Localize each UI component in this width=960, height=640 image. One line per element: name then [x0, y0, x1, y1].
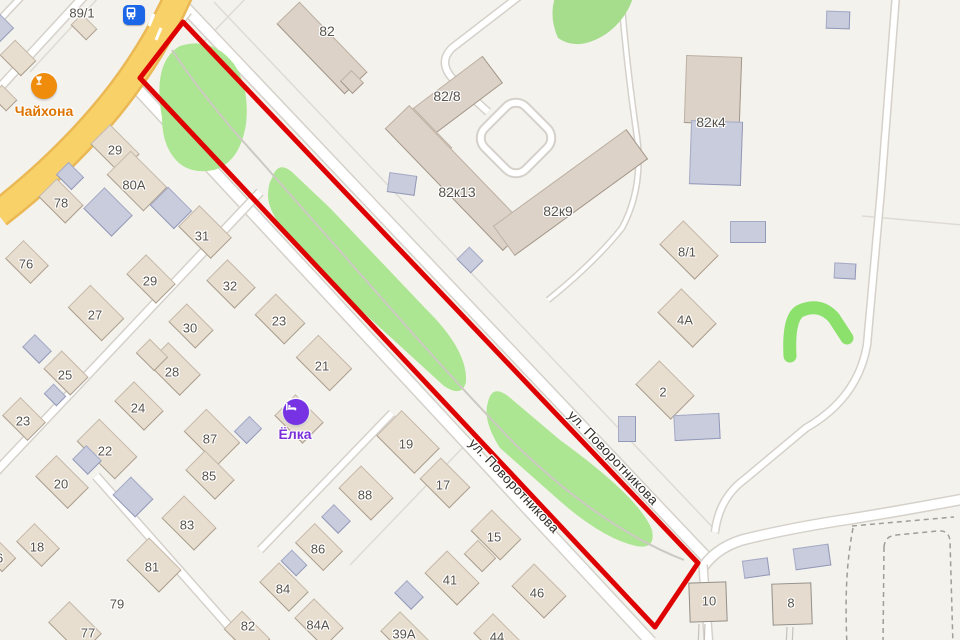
building-outbuilding	[387, 172, 418, 196]
house-number-label: 23	[16, 415, 30, 428]
poi-chaihona[interactable]	[31, 73, 57, 99]
house-number-label: 32	[223, 280, 237, 293]
hookah-glass-icon	[31, 73, 47, 89]
house-number-label: 21	[315, 360, 329, 373]
house-number-label: 87	[203, 433, 217, 446]
house-number-label: 23	[272, 315, 286, 328]
house-number-label: 88	[358, 489, 372, 502]
building-outbuilding	[826, 11, 851, 30]
house-number-label: 82к13	[438, 185, 475, 199]
house-number-label: 46	[530, 587, 544, 600]
house-number-label: 16	[0, 552, 3, 565]
house-number-label: 81	[145, 561, 159, 574]
house-number-label: 78	[54, 197, 68, 210]
bus-stop-icon[interactable]	[123, 5, 145, 25]
house-number-label: 44	[490, 631, 504, 640]
house-number-label: 82к9	[543, 204, 572, 218]
house-number-label: 83	[180, 519, 194, 532]
house-number-label: 8/1	[678, 246, 696, 259]
house-number-label: 84	[276, 583, 290, 596]
house-number-label: 82/8	[433, 89, 460, 103]
bus-icon	[123, 5, 139, 21]
poi-chaihona-label[interactable]: Чайхона	[15, 103, 73, 119]
poi-yolka-circle	[283, 399, 309, 425]
house-number-label: 4A	[677, 314, 693, 327]
house-number-label: 15	[487, 531, 501, 544]
house-number-label: 27	[88, 309, 102, 322]
building-outbuilding	[730, 221, 766, 243]
house-number-label: 2	[659, 386, 666, 399]
house-number-label: 31	[195, 230, 209, 243]
house-number-label: 20	[54, 478, 68, 491]
green-hedge	[790, 308, 847, 356]
building-outbuilding	[673, 413, 720, 441]
house-number-label: 41	[443, 574, 457, 587]
house-number-label: 24	[131, 402, 145, 415]
house-number-label: 29	[143, 275, 157, 288]
house-number-label: 79	[110, 598, 124, 611]
house-number-label: 22	[98, 445, 112, 458]
house-number-label: 77	[81, 627, 95, 640]
house-number-label: 82	[319, 24, 335, 38]
house-number-label: 30	[183, 322, 197, 335]
house-number-label: 86	[311, 543, 325, 556]
map-canvas[interactable]: 89/18282/882к1382к982к42980A783176293227…	[0, 0, 960, 640]
poi-chaihona-circle	[31, 73, 57, 99]
building-outbuilding	[834, 262, 857, 279]
house-number-label: 29	[108, 144, 122, 157]
house-number-label: 84A	[306, 619, 329, 632]
house-number-label: 82к4	[696, 115, 725, 129]
poi-yolka-label[interactable]: Ёлка	[278, 426, 311, 442]
house-number-label: 8	[787, 597, 794, 610]
building-outbuilding	[618, 416, 636, 442]
house-number-label: 80A	[122, 179, 145, 192]
house-number-label: 10	[702, 595, 716, 608]
building-outbuilding	[742, 557, 770, 578]
hotel-bed-icon	[283, 399, 299, 415]
house-number-label: 89/1	[69, 7, 94, 20]
house-number-label: 18	[30, 541, 44, 554]
house-number-label: 39A	[392, 628, 415, 640]
house-number-label: 28	[165, 366, 179, 379]
house-number-label: 25	[58, 369, 72, 382]
construction-site-outline	[846, 517, 954, 640]
poi-yolka[interactable]	[283, 399, 309, 425]
house-number-label: 85	[202, 470, 216, 483]
house-number-label: 82	[241, 620, 255, 633]
house-number-label: 76	[19, 258, 33, 271]
house-number-label: 19	[399, 438, 413, 451]
house-number-label: 17	[436, 479, 450, 492]
